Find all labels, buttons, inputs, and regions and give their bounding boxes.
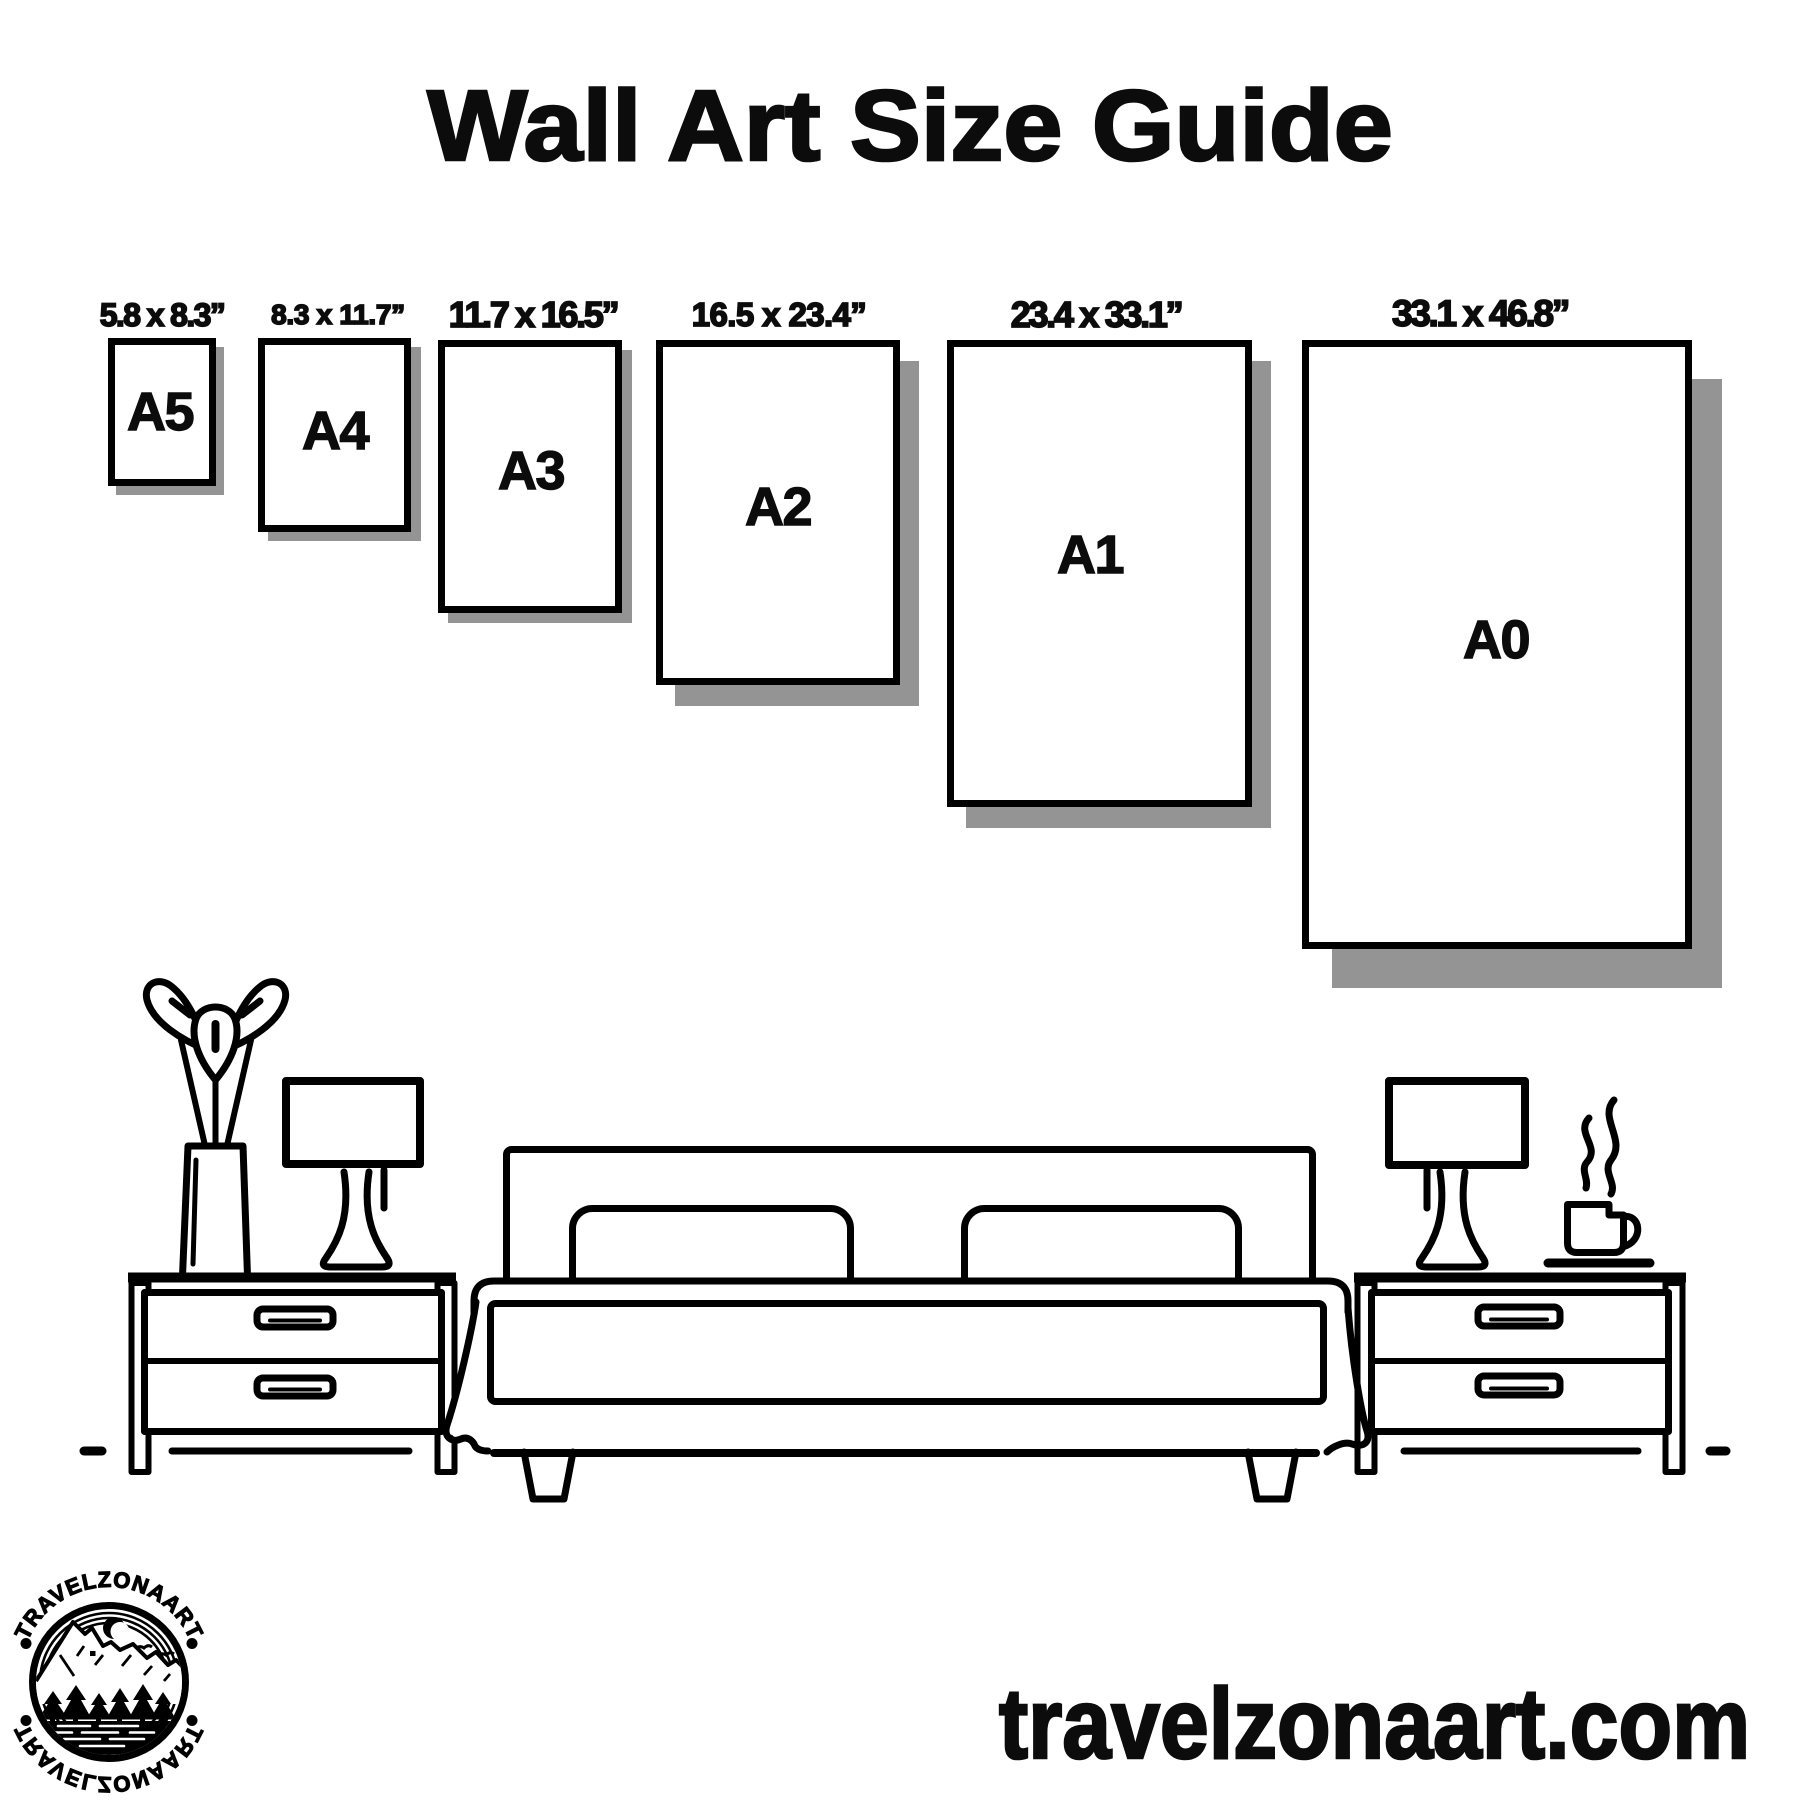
svg-text:16.5 x 23.4”: 16.5 x 23.4” [692, 296, 866, 333]
svg-text:A2: A2 [745, 477, 811, 537]
svg-text:A0: A0 [1463, 610, 1529, 670]
svg-text:travelzonaart.com: travelzonaart.com [999, 1668, 1750, 1780]
svg-text:A3: A3 [498, 441, 564, 501]
svg-text:5.8 x 8.3”: 5.8 x 8.3” [100, 297, 225, 333]
svg-text:A1: A1 [1057, 525, 1123, 585]
svg-text:11.7 x 16.5”: 11.7 x 16.5” [449, 294, 618, 335]
svg-text:Wall Art Size Guide: Wall Art Size Guide [427, 70, 1393, 181]
svg-text:23.4 x 33.1”: 23.4 x 33.1” [1011, 294, 1182, 335]
svg-text:33.1 x 46.8”: 33.1 x 46.8” [1392, 293, 1568, 334]
svg-text:A4: A4 [302, 401, 369, 461]
svg-text:8.3 x 11.7”: 8.3 x 11.7” [271, 299, 405, 330]
svg-text:A5: A5 [127, 382, 193, 442]
